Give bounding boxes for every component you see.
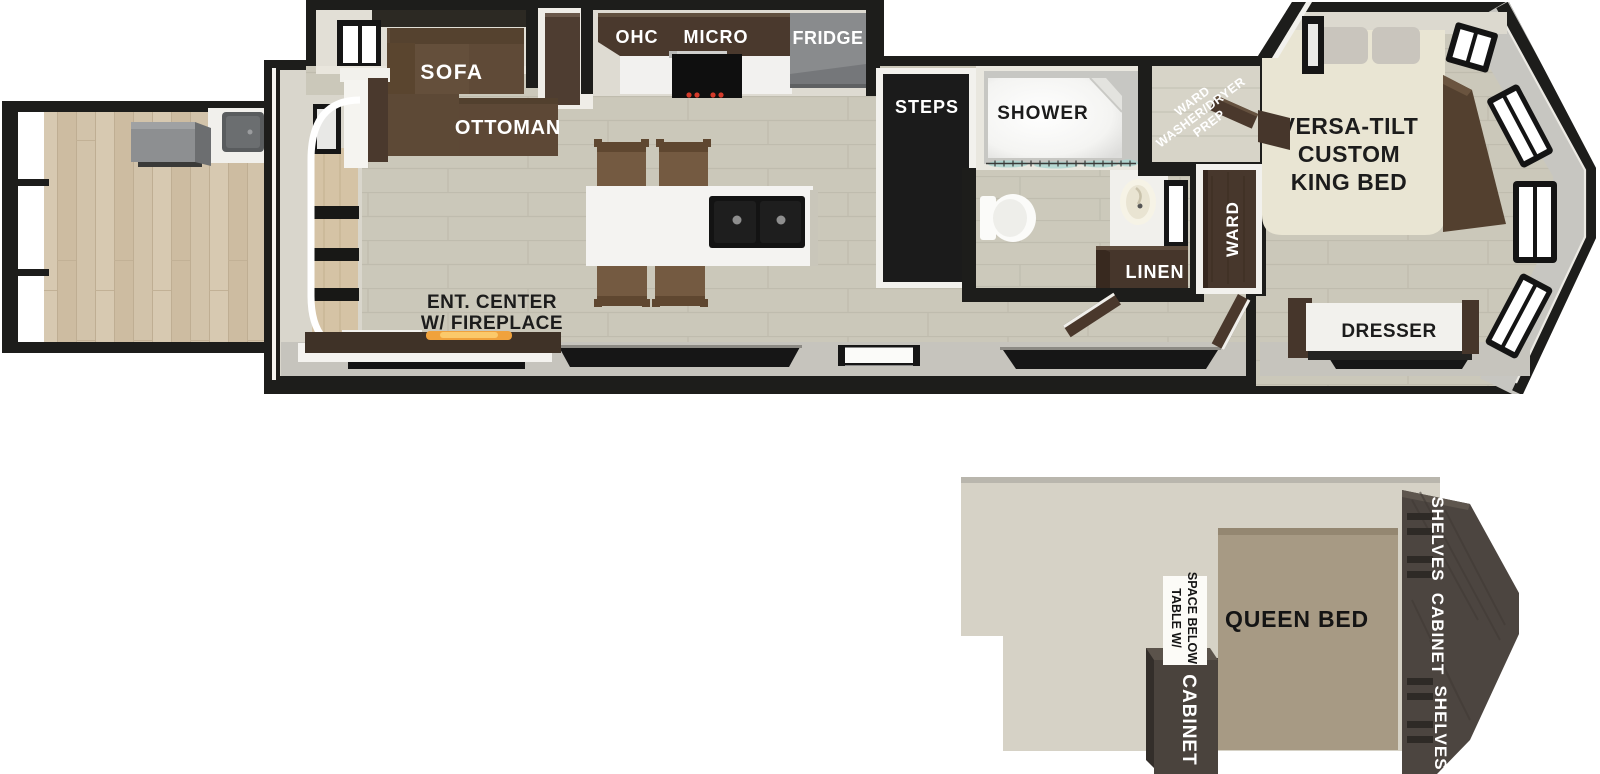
svg-text:VERSA-TILT: VERSA-TILT: [1280, 113, 1419, 139]
svg-text:FRIDGE: FRIDGE: [792, 28, 863, 48]
svg-text:STEPS: STEPS: [895, 97, 959, 117]
svg-text:CABINET: CABINET: [1428, 593, 1447, 676]
svg-text:ENT. CENTER: ENT. CENTER: [427, 292, 557, 313]
svg-text:SHELVES: SHELVES: [1431, 685, 1450, 770]
svg-text:SHELVES: SHELVES: [1428, 496, 1447, 581]
svg-text:SPACE BELOW: SPACE BELOW: [1185, 572, 1199, 664]
svg-text:SOFA: SOFA: [420, 61, 483, 84]
svg-text:SHOWER: SHOWER: [997, 103, 1089, 124]
svg-text:CABINET: CABINET: [1178, 674, 1199, 765]
svg-text:QUEEN BED: QUEEN BED: [1225, 606, 1369, 632]
svg-text:MICRO: MICRO: [684, 27, 749, 47]
svg-text:WARD: WARD: [1223, 201, 1242, 257]
svg-text:KING BED: KING BED: [1291, 169, 1407, 195]
svg-text:CUSTOM: CUSTOM: [1298, 141, 1400, 167]
svg-text:TABLE W/: TABLE W/: [1169, 588, 1183, 648]
svg-text:OTTOMAN: OTTOMAN: [455, 117, 561, 139]
svg-text:DRESSER: DRESSER: [1341, 321, 1436, 342]
svg-text:OHC: OHC: [616, 27, 659, 47]
svg-text:W/ FIREPLACE: W/ FIREPLACE: [421, 313, 563, 334]
svg-text:LINEN: LINEN: [1126, 262, 1185, 282]
